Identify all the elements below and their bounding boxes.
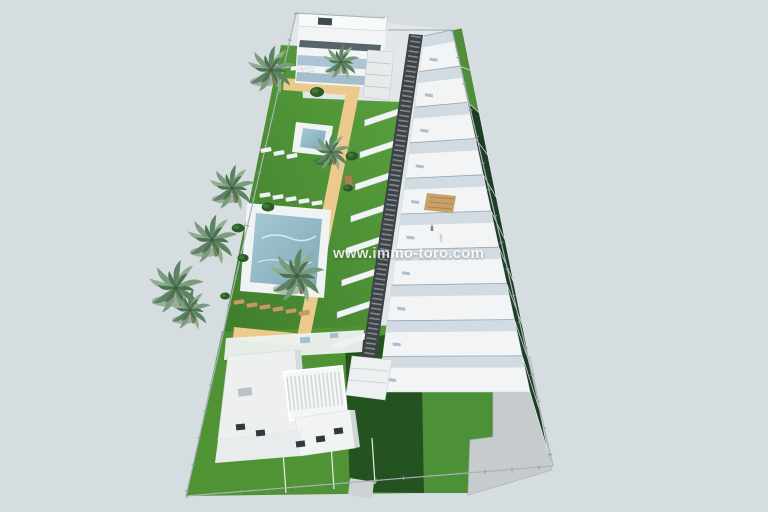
villa-wing-right <box>295 410 355 456</box>
bush-highlight <box>347 153 353 158</box>
bush <box>220 293 230 300</box>
palm-crown <box>230 186 234 190</box>
bush-highlight <box>239 255 245 259</box>
unit-terrace-shade <box>386 320 517 333</box>
bush <box>346 152 359 161</box>
render-canvas: www.immo-toro.com <box>0 0 768 512</box>
bush-highlight <box>312 89 319 94</box>
rooftop-box <box>318 18 332 26</box>
bush <box>262 203 275 212</box>
bush <box>237 254 248 262</box>
unit-terrace-shade <box>390 283 509 296</box>
unit-terrace-shade <box>381 356 525 368</box>
patio-glass <box>330 333 338 339</box>
person-body <box>440 237 443 242</box>
bush <box>343 185 353 192</box>
palm-crown <box>339 60 342 63</box>
palm-crown <box>295 274 300 279</box>
palm-crown <box>188 308 192 312</box>
palm-crown <box>329 150 332 153</box>
person <box>440 234 443 242</box>
palm-crown <box>210 238 214 242</box>
villa <box>215 350 360 463</box>
stair-terrace <box>346 356 392 400</box>
patio-glass <box>300 337 310 344</box>
palm-crown <box>269 68 273 72</box>
person-head <box>440 234 443 237</box>
person-head <box>431 223 434 226</box>
bush-highlight <box>344 186 349 190</box>
bush-highlight <box>263 204 269 209</box>
bush <box>232 224 245 233</box>
bush <box>310 87 324 97</box>
person-body <box>431 226 434 231</box>
aerial-render <box>0 0 768 512</box>
palm-crown <box>174 286 179 291</box>
person <box>431 223 434 231</box>
bush-highlight <box>233 225 239 230</box>
bush-highlight <box>221 294 226 298</box>
